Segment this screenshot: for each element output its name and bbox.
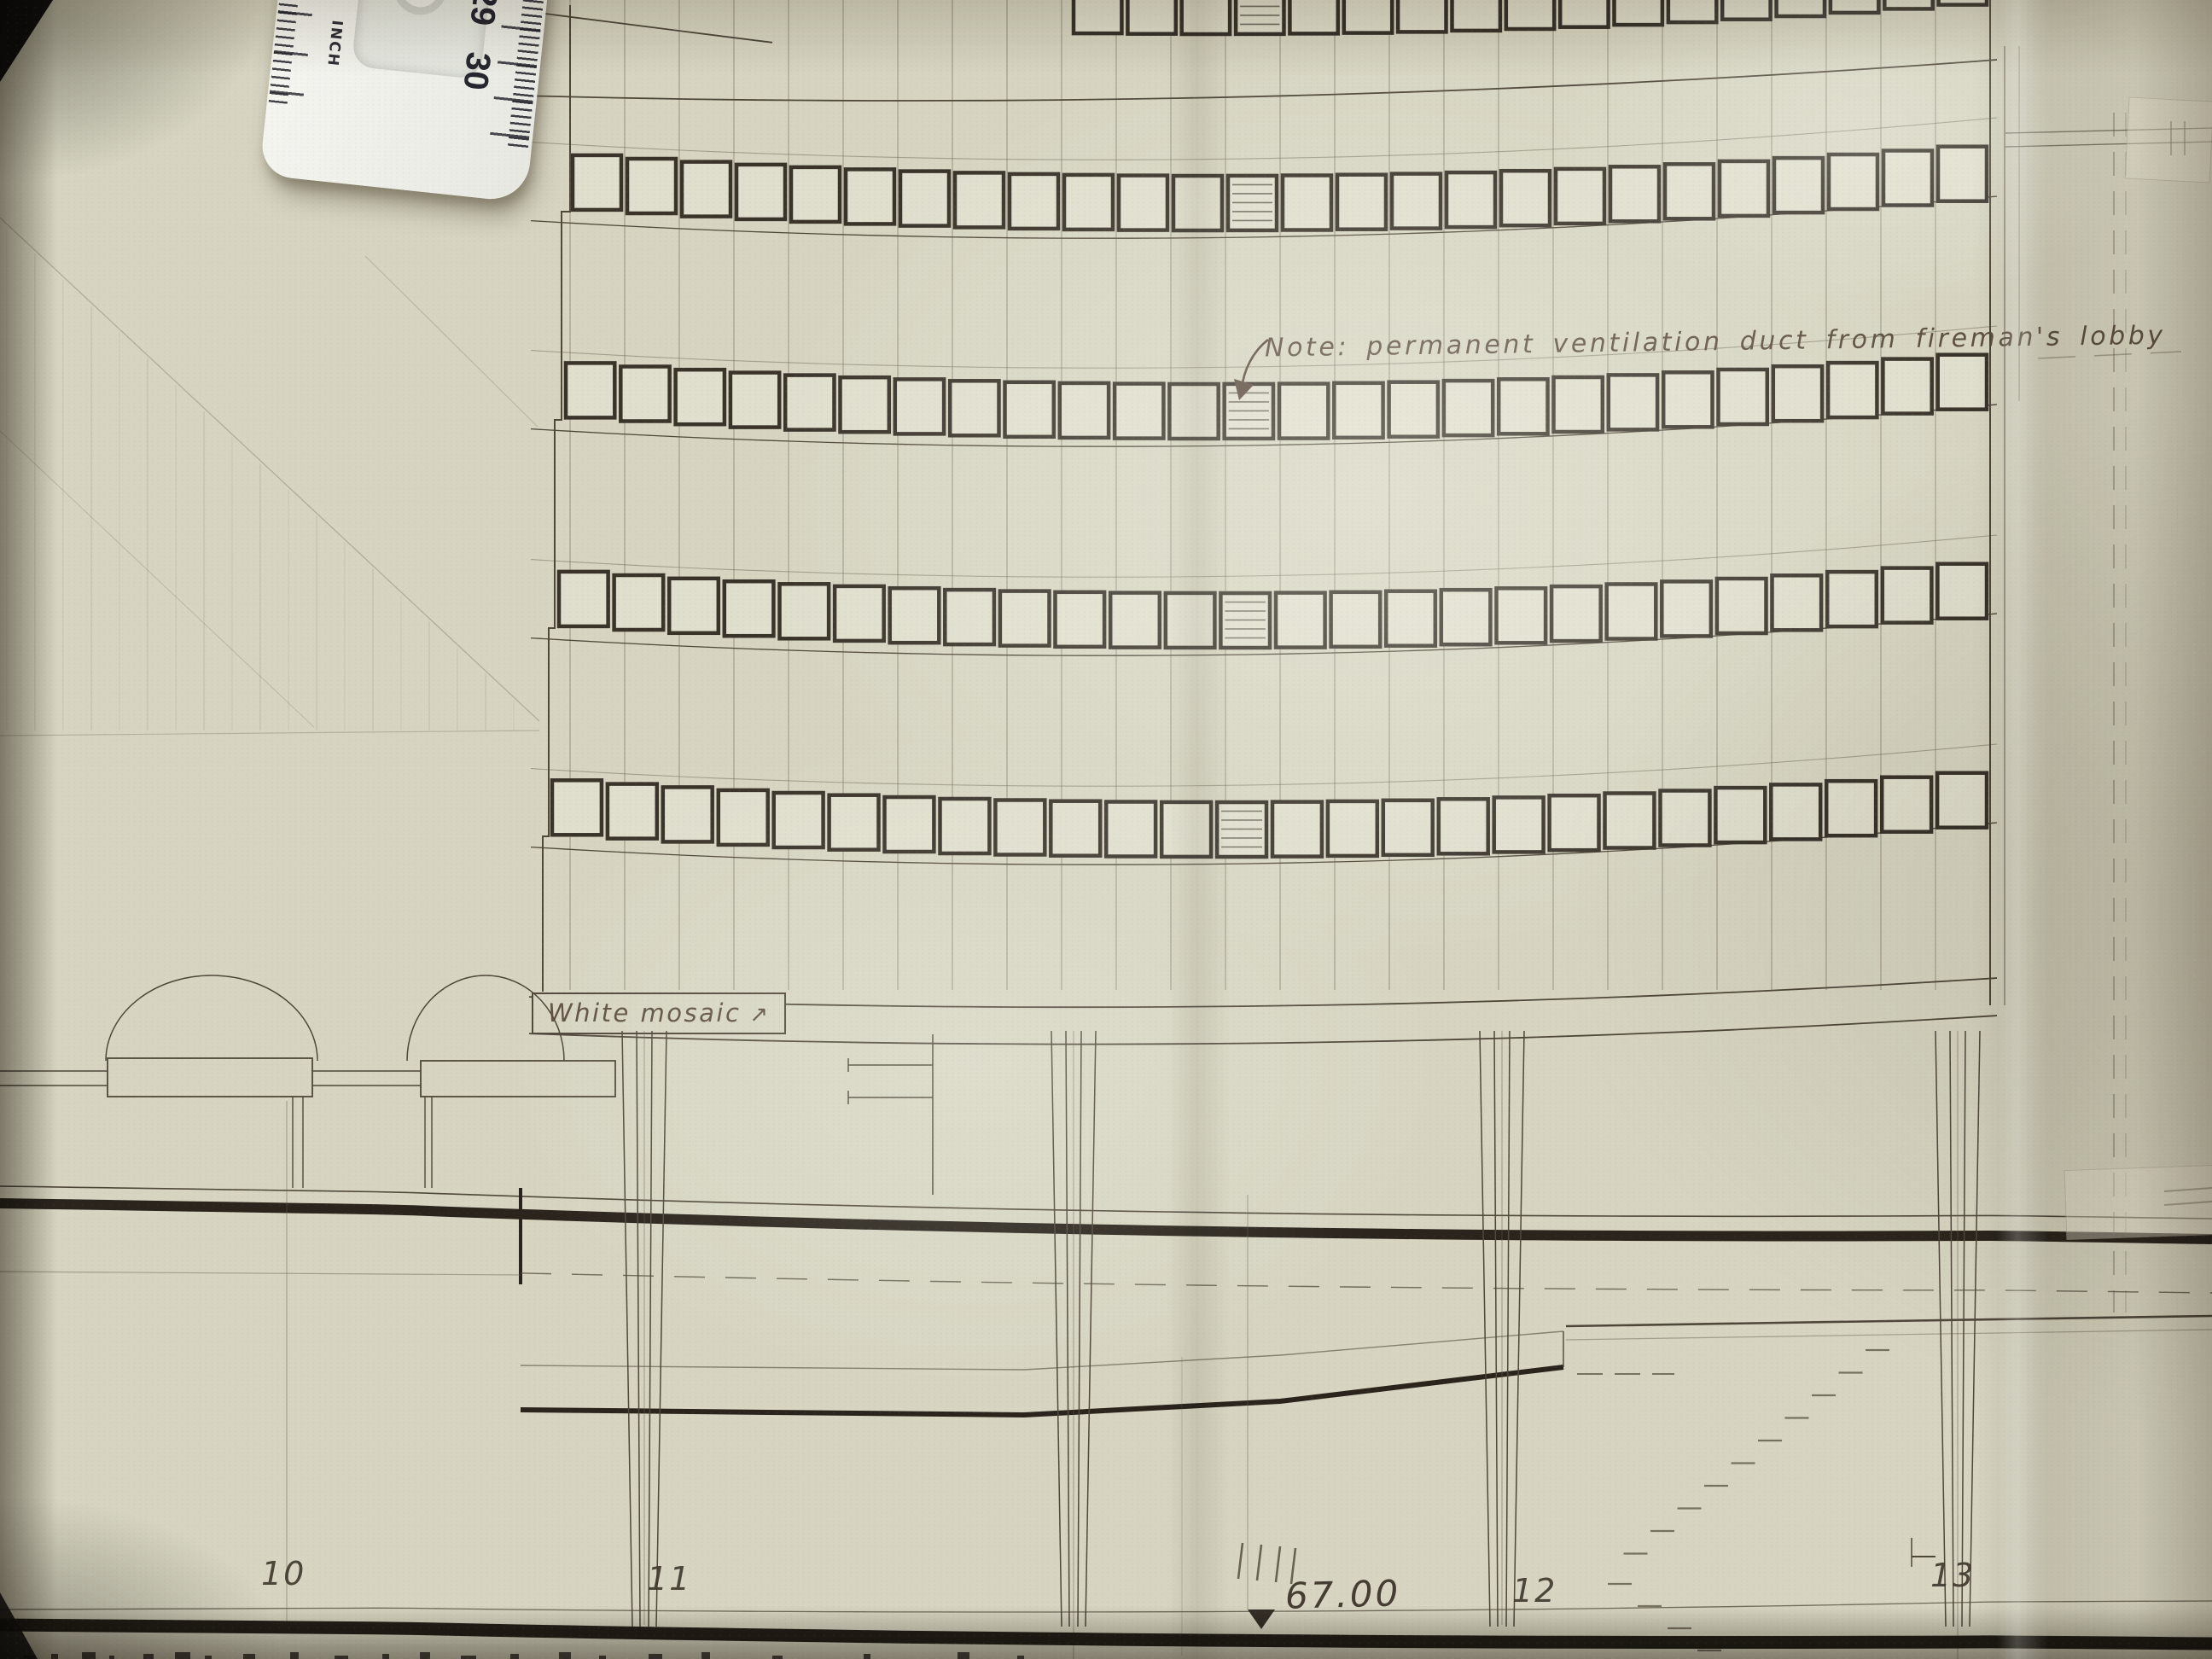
cut-text-mark: [599, 1656, 606, 1659]
grid-label-10: 10: [261, 1555, 306, 1592]
window-band-band-2: [566, 355, 1987, 439]
cut-text-mark: [772, 1656, 783, 1659]
cut-text-mark: [510, 1654, 519, 1659]
cut-text-mark: [175, 1652, 190, 1659]
cut-text-mark: [143, 1654, 154, 1659]
elevation-linework: [0, 0, 2212, 1659]
ruler: INCH 8 29 30: [259, 0, 551, 203]
cut-text-mark: [1017, 1656, 1024, 1659]
cut-text-mark: [243, 1654, 255, 1659]
mosaic-label: White mosaic↗: [548, 998, 771, 1027]
cut-text-mark: [420, 1652, 430, 1659]
cut-text-mark: [82, 1652, 96, 1659]
cut-text-mark: [51, 1654, 58, 1659]
cut-text-mark: [649, 1654, 662, 1659]
cut-text-mark: [701, 1652, 710, 1659]
cut-text-mark: [864, 1654, 870, 1659]
ruler-unit-label: INCH: [323, 20, 346, 68]
stair-dashed: [1608, 1350, 1889, 1650]
ruler-number: 30: [455, 50, 497, 92]
cut-text-mark: [335, 1656, 348, 1659]
cut-text-mark: [958, 1652, 969, 1659]
level-annotation: 67.00: [1284, 1572, 1400, 1617]
grid-label-11: 11: [647, 1560, 691, 1598]
grid-label-12: 12: [1512, 1572, 1557, 1610]
mosaic-label-text: White mosaic: [548, 998, 741, 1027]
ruler-ticks-left-long: [268, 0, 321, 111]
cut-text-mark: [205, 1656, 212, 1659]
arrow-up-right-icon: ↗: [749, 1002, 770, 1027]
architectural-elevation-photo: Note: permanent ventilation duct from fi…: [0, 0, 2212, 1659]
datum-triangle-icon: [1248, 1610, 1275, 1629]
tape-patch: [2064, 1165, 2212, 1240]
cut-text-mark: [559, 1652, 571, 1659]
window-band-roof-band: [1074, 0, 1987, 34]
window-band-band-3: [559, 564, 1987, 648]
cut-off-text-marks: [0, 1649, 1109, 1659]
ruler-number: 29: [462, 0, 504, 27]
tape-patch: [2125, 96, 2212, 183]
cut-text-mark: [382, 1654, 389, 1659]
cut-text-mark: [109, 1656, 114, 1659]
cut-text-mark: [290, 1652, 299, 1659]
cut-text-mark: [461, 1656, 476, 1659]
grid-label-13: 13: [1930, 1557, 1975, 1594]
